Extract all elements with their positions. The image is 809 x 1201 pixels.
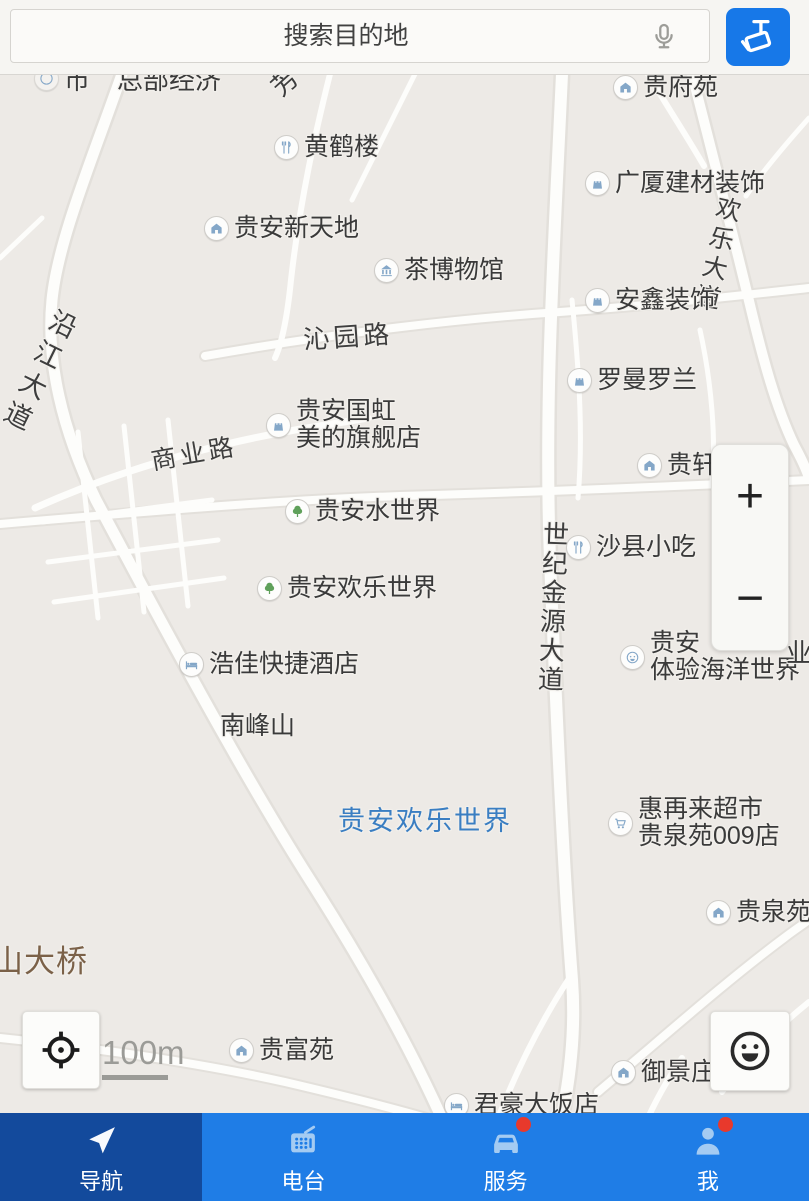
radio-icon [284,1122,322,1160]
poi-label: 贵安水世界 [315,498,440,525]
locate-button[interactable] [22,1011,100,1089]
museum-icon [374,258,399,283]
scale-bar [102,1075,168,1080]
cart-icon [613,816,628,831]
poi-label: 贵府苑 [643,74,718,101]
poi-label: 南峰山 [220,713,295,740]
traffic-camera-icon [736,15,780,59]
poi-label: 贵轩 [667,452,717,479]
restaurant-icon [279,140,294,155]
zoom-in-button[interactable]: + [712,445,788,548]
poi-marker[interactable]: 广厦建材装饰 [585,170,765,197]
bag-icon [585,288,610,313]
poi-label: 贵安新天地 [234,215,359,242]
poi-marker[interactable]: 浩佳快捷酒店 [179,651,359,678]
tab-service[interactable]: 服务 [405,1113,607,1201]
notification-badge [516,1117,531,1132]
poi-marker[interactable]: 贵安国虹美的旗舰店 [266,398,421,452]
smiley-button[interactable] [710,1011,790,1091]
museum-icon [379,263,394,278]
road-label: 沁园路 [302,314,394,357]
bag-icon [590,293,605,308]
poi-marker[interactable]: 贵富苑 [229,1037,334,1064]
tab-navigate[interactable]: 导航 [0,1113,202,1201]
house-icon [234,1043,249,1058]
bag-icon [572,373,587,388]
poi-label: 惠再来超市贵泉苑009店 [638,796,780,850]
map-bridge-label: 山大桥 [0,936,88,981]
tab-label: 服务 [484,1164,528,1196]
bed-icon [449,1098,464,1113]
bottom-navbar: 导航电台服务我 [0,1113,809,1201]
radio-icon [284,1122,322,1160]
car-icon [487,1122,525,1160]
face-icon [620,645,645,670]
restaurant-icon [571,540,586,555]
poi-marker[interactable]: 安鑫装饰 [585,287,715,314]
poi-label: 茶博物馆 [404,257,504,284]
poi-marker[interactable]: 御景庄 [611,1059,716,1086]
poi-label: 浩佳快捷酒店 [209,651,359,678]
traffic-camera-button[interactable] [726,8,790,66]
tree-icon [290,504,305,519]
scale-label: 100m [102,1034,185,1072]
poi-marker[interactable]: 贵安水世界 [285,498,440,525]
bag-icon [590,176,605,191]
tab-label: 我 [697,1164,719,1196]
cart-icon [608,811,633,836]
zoom-out-button[interactable]: − [712,548,788,651]
house-icon [613,75,638,100]
tree-icon [257,576,282,601]
map-area-label[interactable]: 贵安欢乐世界 [338,799,512,838]
poi-marker[interactable]: 罗曼罗兰 [567,367,697,394]
house-icon [204,216,229,241]
microphone-icon[interactable] [648,19,680,55]
bag-icon [271,418,286,433]
poi-label: 黄鹤楼 [304,134,379,161]
poi-marker[interactable]: 黄鹤楼 [274,134,379,161]
bag-icon [266,413,291,438]
poi-marker[interactable]: 沙县小吃 [566,534,696,561]
top-search-bar [0,0,809,75]
house-icon [642,458,657,473]
poi-label: 御景庄 [641,1059,716,1086]
house-icon [229,1038,254,1063]
map-app-screen: 贵府苑黄鹤楼广厦建材装饰贵安新天地茶博物馆安鑫装饰罗曼罗兰贵安国虹美的旗舰店贵轩… [0,0,809,1201]
poi-label: 沙县小吃 [596,534,696,561]
notification-badge [718,1117,733,1132]
restaurant-icon [566,535,591,560]
zoom-panel: + − [711,444,789,651]
tree-icon [262,581,277,596]
house-icon [611,1060,636,1085]
map-scale: 100m [102,1034,185,1080]
poi-label: 贵富苑 [259,1037,334,1064]
bag-icon [567,368,592,393]
map-label-fragment: 业 [786,633,809,670]
poi-marker[interactable]: 贵轩 [637,452,717,479]
poi-label: 贵泉苑 [736,899,809,926]
tree-icon [285,499,310,524]
poi-label: 贵安国虹美的旗舰店 [296,398,421,452]
tab-label: 导航 [79,1164,123,1196]
smiley-icon [726,1027,774,1075]
poi-label: 广厦建材装饰 [615,170,765,197]
poi-marker[interactable]: 贵安新天地 [204,215,359,242]
house-icon [706,900,731,925]
poi-marker[interactable]: 贵泉苑 [706,899,809,926]
map-canvas[interactable]: 贵府苑黄鹤楼广厦建材装饰贵安新天地茶博物馆安鑫装饰罗曼罗兰贵安国虹美的旗舰店贵轩… [0,0,809,1201]
tab-label: 电台 [281,1164,325,1196]
house-icon [637,453,662,478]
house-icon [209,221,224,236]
house-icon [616,1065,631,1080]
restaurant-icon [274,135,299,160]
poi-marker[interactable]: 贵安欢乐世界 [257,575,437,602]
poi-label: 罗曼罗兰 [597,367,697,394]
poi-marker[interactable]: 南峰山 [220,713,295,740]
search-input[interactable] [10,9,710,63]
poi-marker[interactable]: 贵府苑 [613,74,718,101]
face-icon [625,650,640,665]
bed-icon [184,657,199,672]
house-icon [618,80,633,95]
house-icon [711,905,726,920]
navigation-arrow-icon [82,1122,120,1160]
tab-me[interactable]: 我 [607,1113,809,1201]
poi-marker[interactable]: 茶博物馆 [374,257,504,284]
navigation-arrow-icon [82,1122,120,1160]
poi-marker[interactable]: 惠再来超市贵泉苑009店 [608,796,780,850]
bag-icon [585,171,610,196]
tab-radio[interactable]: 电台 [202,1113,404,1201]
bed-icon [179,652,204,677]
poi-label: 贵安欢乐世界 [287,575,437,602]
poi-label: 安鑫装饰 [615,287,715,314]
crosshair-icon [38,1027,84,1073]
person-icon [689,1122,727,1160]
